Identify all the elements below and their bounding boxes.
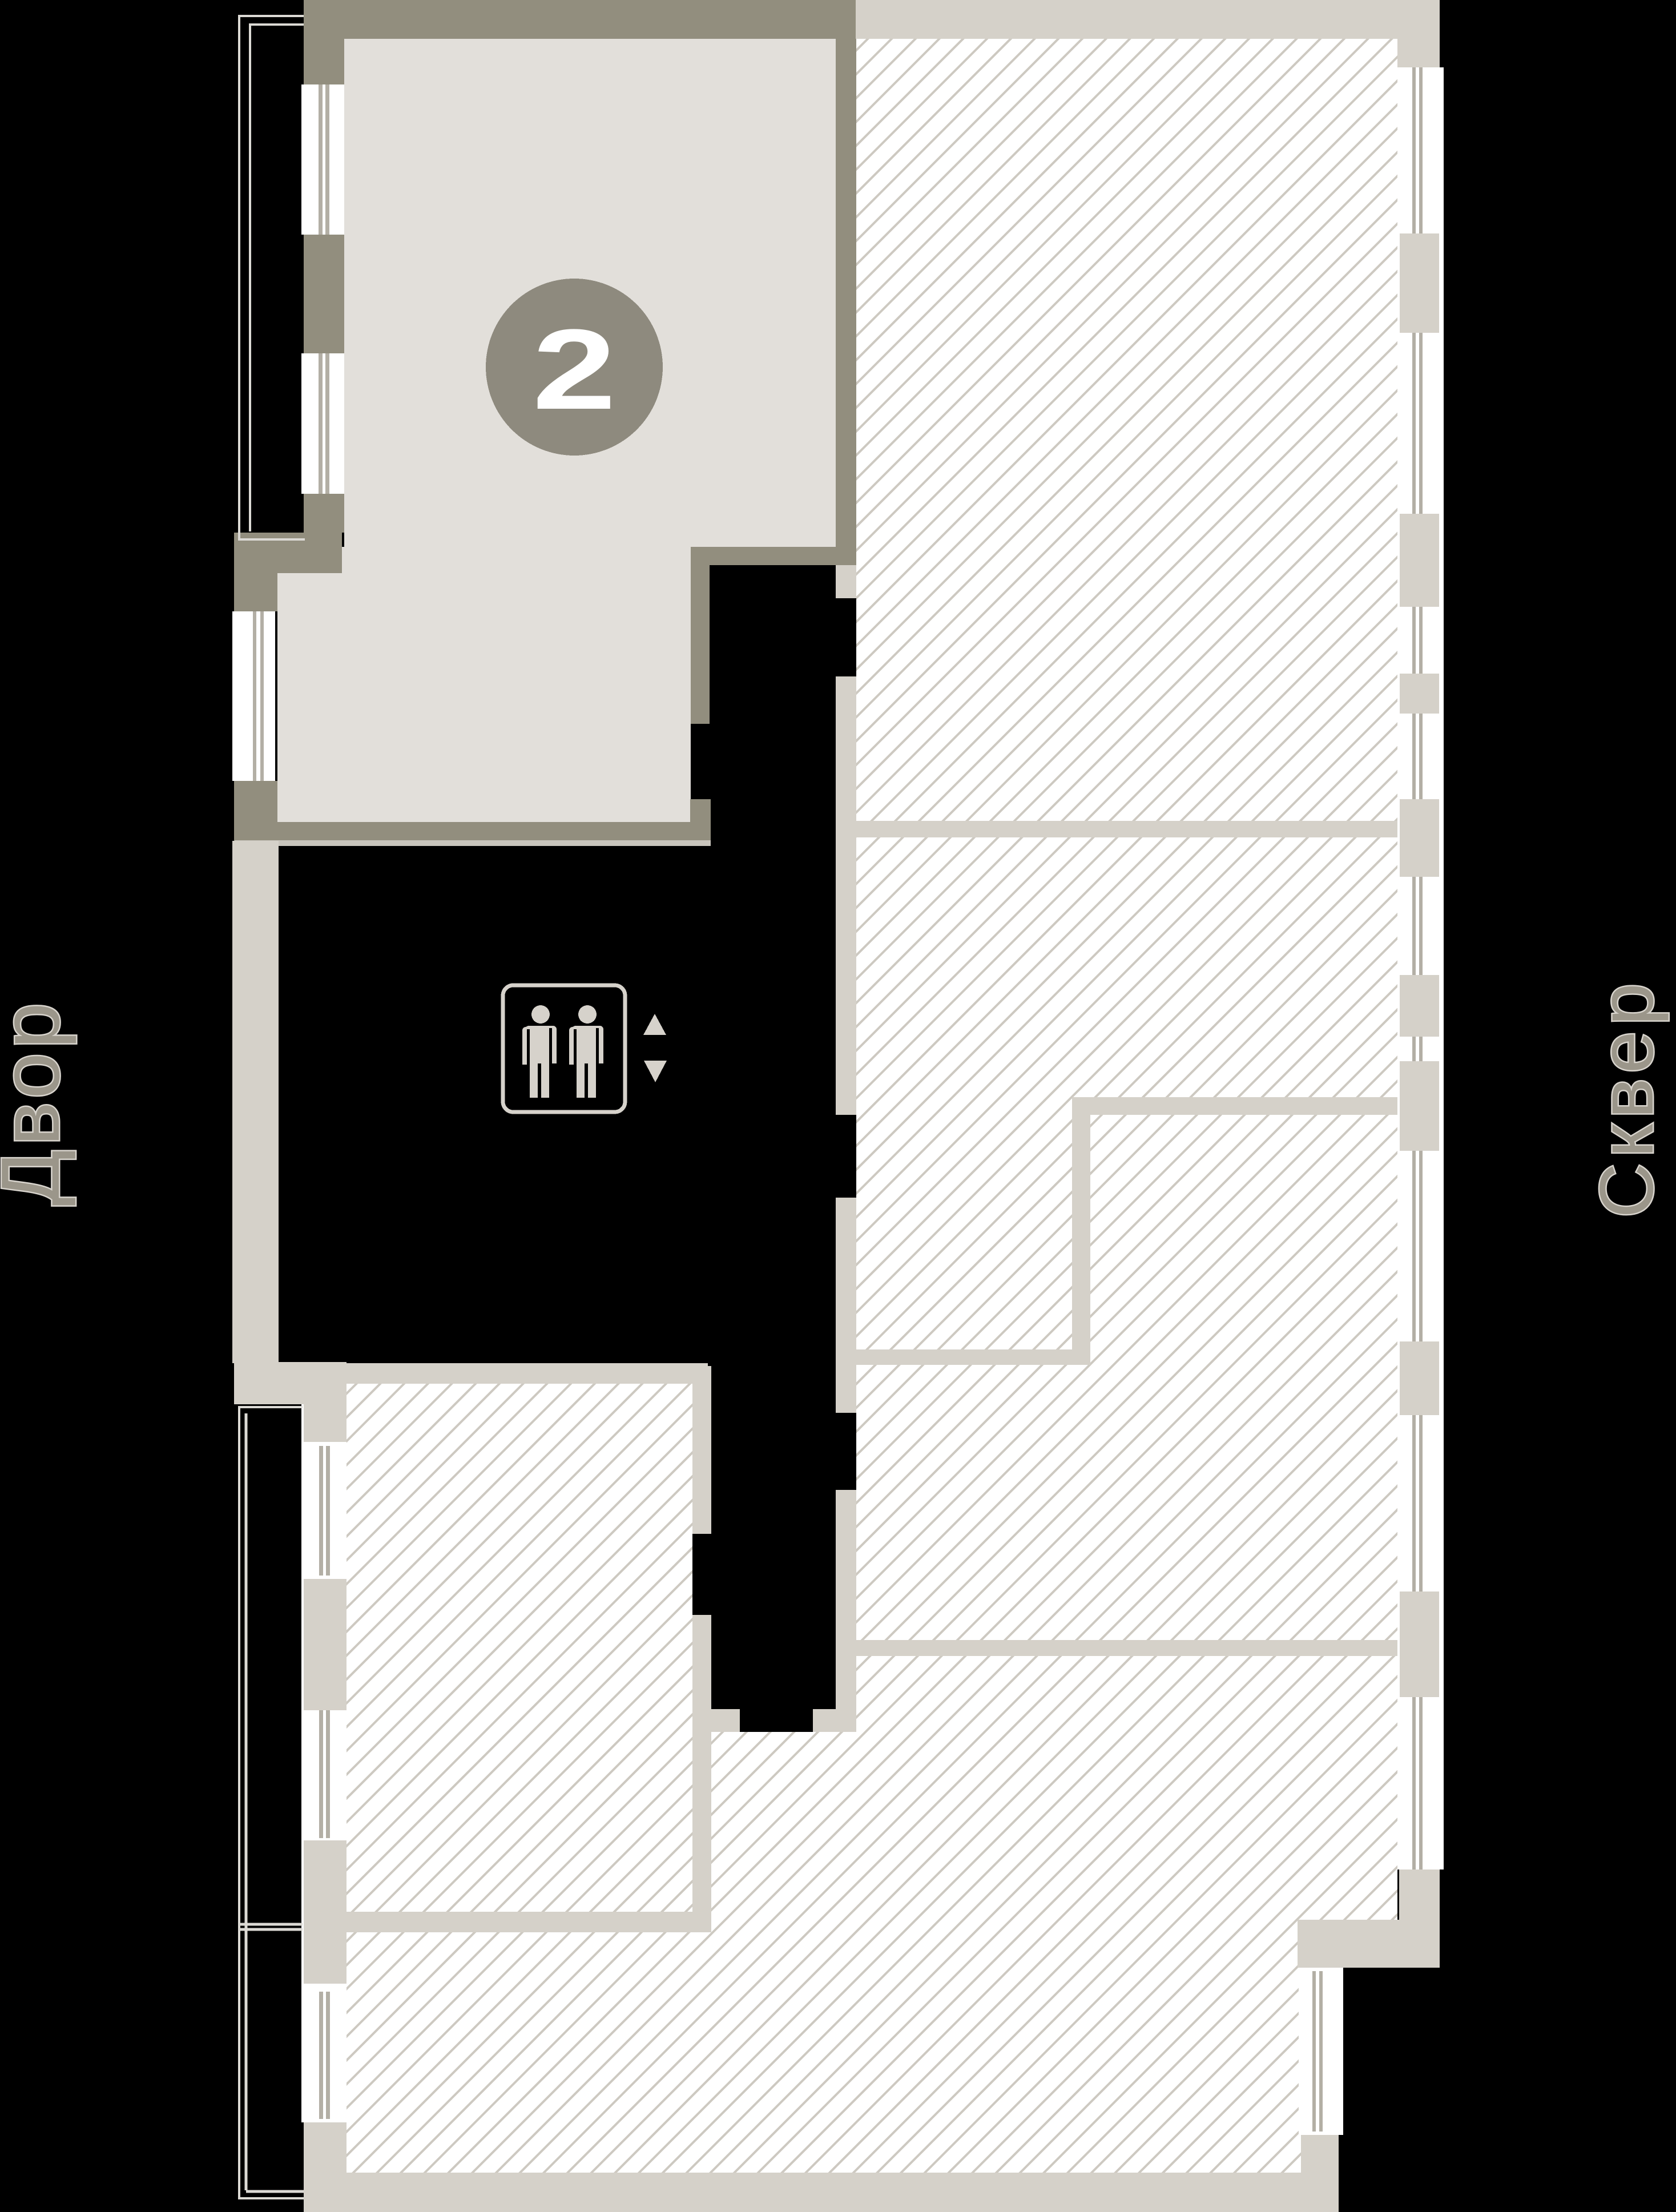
svg-text:Двор: Двор <box>0 999 76 1206</box>
svg-text:2: 2 <box>533 305 617 433</box>
svg-text:Сквер: Сквер <box>1585 977 1669 1218</box>
